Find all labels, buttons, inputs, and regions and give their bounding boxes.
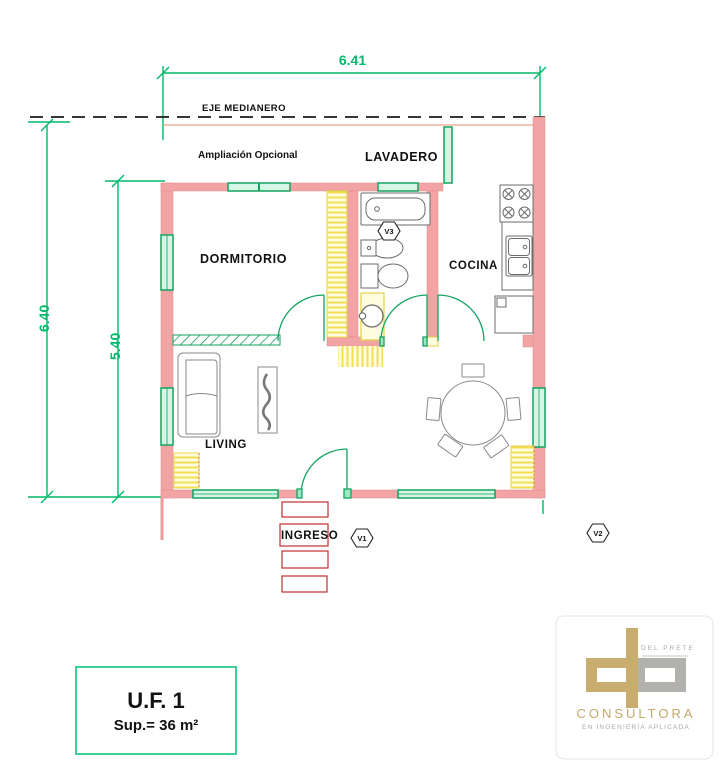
kitchen-counter-sink [502,222,533,290]
unit-area: Sup.= 36 m² [114,717,199,734]
heater-right [511,446,534,488]
logo-monogram [556,616,713,759]
unit-title: U.F. 1 [127,688,184,714]
room-label-dormitorio: DORMITORIO [200,252,287,266]
fridge [495,296,533,333]
logo-company-text: CONSULTORA [566,706,706,721]
floor-plan-drawing [0,0,720,767]
counter-hatch [338,346,383,367]
eje-medianero-label: EJE MEDIANERO [202,103,286,114]
dimension-lines [28,66,546,514]
left-inner-dimension-label: 5.40 [107,333,123,360]
marker-v3-label: V3 [378,227,400,236]
heater-left [174,453,199,488]
hatched-half-wall [173,335,280,345]
entrance-steps [280,502,328,592]
floor-plan-page: 6.41 6.40 5.40 EJE MEDIANERO Ampliación … [0,0,720,767]
room-label-cocina: COCINA [449,260,498,272]
logo-brand-text: DEL PRETE [641,645,695,652]
bathtub [361,193,430,225]
unit-info-box: U.F. 1 Sup.= 36 m² [75,666,237,755]
room-label-lavadero: LAVADERO [365,150,438,164]
marker-v1-label: V1 [351,534,373,543]
room-label-living: LIVING [205,439,247,451]
logo-tagline-text: EN INGENIERÍA APLICADA [563,724,709,731]
tv-unit [258,367,277,433]
marker-v2-label: V2 [587,529,609,538]
toilet [361,264,408,288]
dining-table [426,364,521,458]
ampliacion-label: Ampliación Opcional [198,150,297,161]
room-label-ingreso: INGRESO [281,530,338,542]
wardrobe-hatch [327,191,347,337]
wall-end-cap [427,337,438,346]
bidet [361,238,403,258]
left-outer-dimension-label: 6.40 [36,305,52,332]
sofa [178,353,220,437]
top-dimension-label: 6.41 [310,52,395,68]
stove [500,185,533,222]
